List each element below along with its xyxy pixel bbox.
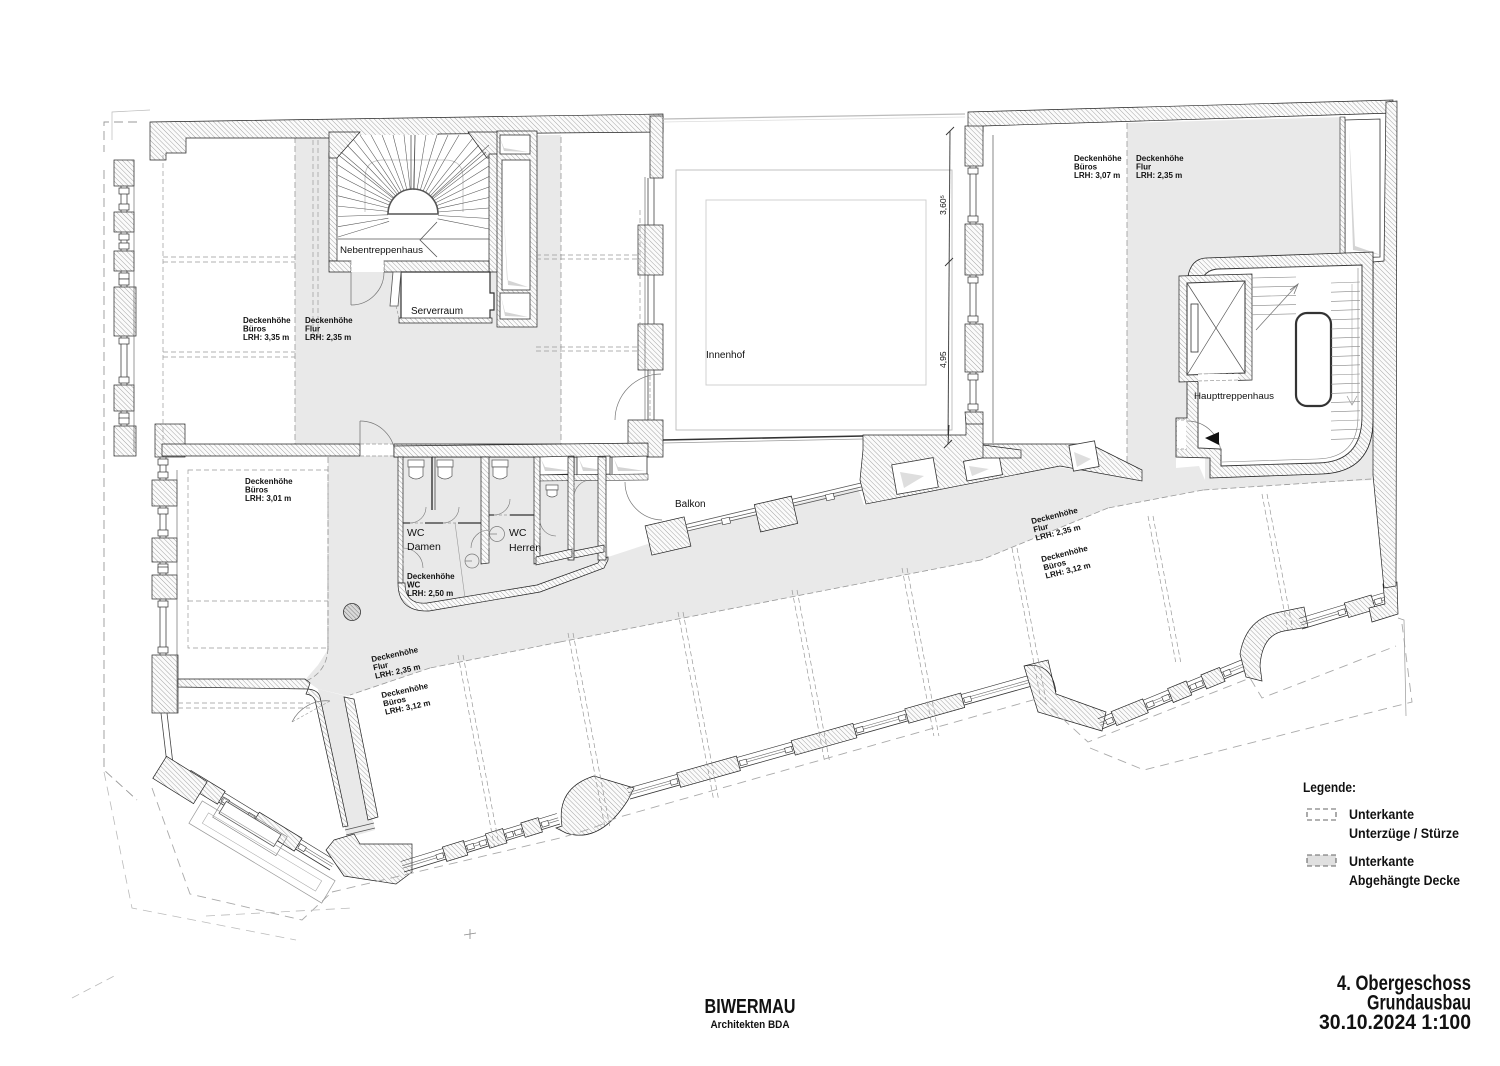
svg-text:LRH: 2,50 m: LRH: 2,50 m: [407, 589, 453, 598]
svg-text:LRH: 2,35 m: LRH: 2,35 m: [1136, 171, 1182, 180]
svg-text:Haupttreppenhaus: Haupttreppenhaus: [1194, 391, 1274, 402]
svg-text:Nebentreppenhaus: Nebentreppenhaus: [340, 245, 423, 256]
svg-text:LRH: 3,01 m: LRH: 3,01 m: [245, 494, 291, 503]
svg-text:Legende:: Legende:: [1303, 779, 1356, 795]
svg-text:Innenhof: Innenhof: [706, 350, 745, 361]
svg-text:Damen: Damen: [407, 541, 441, 553]
svg-text:WC: WC: [509, 527, 527, 539]
svg-text:LRH: 3,35 m: LRH: 3,35 m: [243, 333, 289, 342]
svg-text:3,60⁵: 3,60⁵: [938, 195, 948, 215]
svg-text:Serverraum: Serverraum: [411, 306, 463, 317]
svg-text:Unterkante: Unterkante: [1349, 807, 1414, 822]
svg-text:LRH: 2,35 m: LRH: 2,35 m: [305, 333, 351, 342]
svg-text:Architekten BDA: Architekten BDA: [711, 1019, 790, 1031]
svg-text:Abgehängte Decke: Abgehängte Decke: [1349, 873, 1460, 888]
svg-text:4,95: 4,95: [938, 351, 948, 368]
svg-text:Unterzüge / Stürze: Unterzüge / Stürze: [1349, 826, 1459, 841]
svg-text:LRH: 3,07 m: LRH: 3,07 m: [1074, 171, 1120, 180]
svg-text:Balkon: Balkon: [675, 499, 706, 510]
svg-text:WC: WC: [407, 527, 425, 539]
svg-text:30.10.2024 1:100: 30.10.2024 1:100: [1319, 1010, 1471, 1034]
svg-text:Unterkante: Unterkante: [1349, 854, 1414, 869]
svg-text:BIWERMAU: BIWERMAU: [705, 996, 796, 1018]
svg-text:Herren: Herren: [509, 542, 541, 554]
